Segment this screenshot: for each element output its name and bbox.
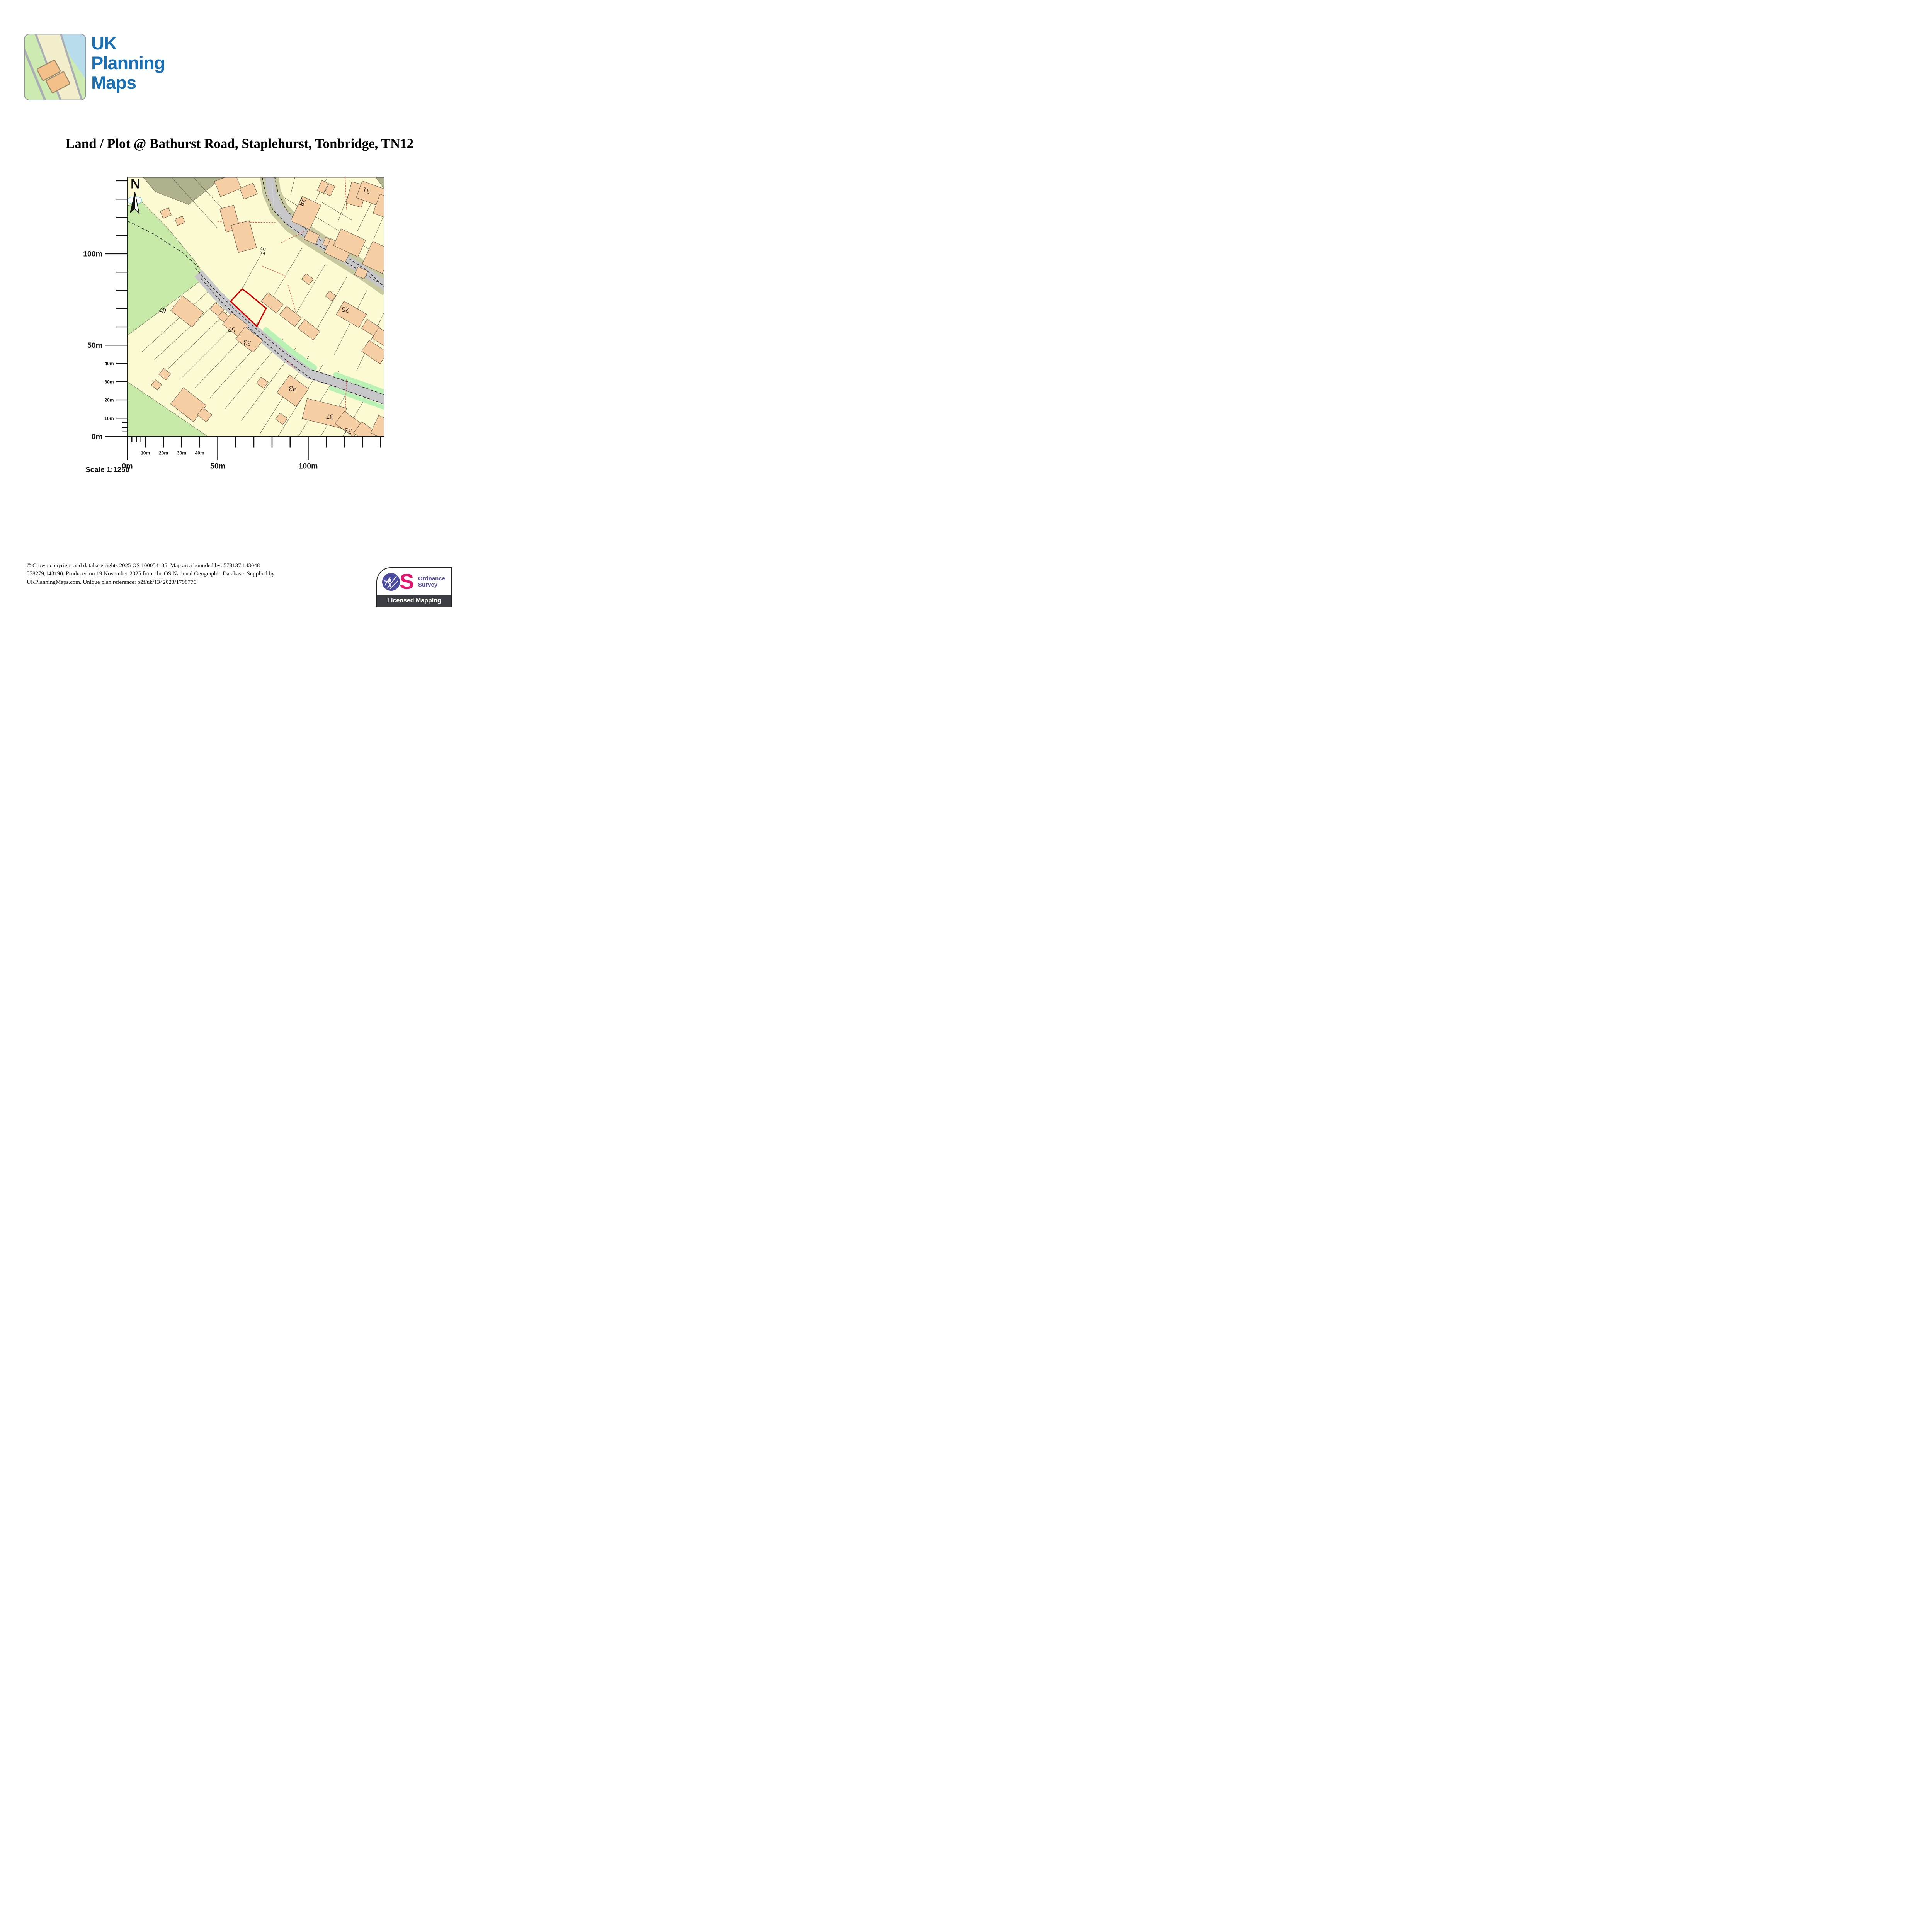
- planning-map-page: { "logo": { "brand": ["UK", "Planning", …: [0, 0, 479, 678]
- uk-planning-maps-logo-icon: [24, 34, 86, 100]
- svg-text:20m: 20m: [104, 398, 114, 403]
- north-label: N: [131, 177, 140, 192]
- svg-text:20m: 20m: [159, 451, 168, 456]
- logo-line-uk: UK: [91, 33, 165, 53]
- svg-text:100m: 100m: [299, 462, 318, 471]
- site-plan-map: 31 28 37 25 67 57 53 43 37 33 N: [82, 176, 385, 472]
- os-s-glyph: S: [400, 570, 414, 594]
- licensed-mapping-bar: Licensed Mapping: [377, 595, 451, 607]
- ordnance-survey-logo: S Ordnance Survey: [377, 568, 451, 595]
- page-title: Land / Plot @ Bathurst Road, Staplehurst…: [0, 136, 479, 151]
- house-number-label: 43: [288, 384, 297, 393]
- copyright-text: © Crown copyright and database rights 20…: [27, 562, 359, 587]
- logo-line-planning: Planning: [91, 53, 165, 73]
- uk-planning-maps-logo-text: UK Planning Maps: [91, 33, 165, 92]
- house-number-label: 37: [258, 247, 267, 255]
- horizontal-scale-labels: 0m 10m 20m 30m 40m 50m 100m: [122, 451, 318, 471]
- svg-text:10m: 10m: [104, 416, 114, 421]
- svg-text:100m: 100m: [83, 250, 102, 259]
- copyright-line: 578279,143190. Produced on 19 November 2…: [27, 570, 359, 578]
- scale-ratio-label: Scale 1:1250: [85, 466, 129, 474]
- svg-text:50m: 50m: [210, 462, 225, 471]
- house-number-label: 33: [344, 426, 352, 435]
- copyright-line: © Crown copyright and database rights 20…: [27, 562, 359, 570]
- svg-text:40m: 40m: [195, 451, 204, 456]
- ordnance-survey-badge: S Ordnance Survey Licensed Mapping: [376, 567, 452, 607]
- house-number-label: 57: [228, 325, 236, 334]
- house-number-label: 53: [243, 338, 252, 347]
- logo-line-maps: Maps: [91, 73, 165, 92]
- svg-text:10m: 10m: [141, 451, 150, 456]
- horizontal-scale-bar: [105, 437, 384, 461]
- copyright-line: UKPlanningMaps.com. Unique plan referenc…: [27, 578, 359, 587]
- house-number-label: 37: [326, 412, 334, 421]
- svg-text:50m: 50m: [87, 341, 102, 350]
- svg-text:40m: 40m: [104, 361, 114, 366]
- house-number-label: 25: [341, 305, 350, 314]
- os-logo-icon: S: [381, 570, 417, 594]
- svg-text:30m: 30m: [177, 451, 186, 456]
- svg-text:0m: 0m: [92, 433, 102, 441]
- svg-text:30m: 30m: [104, 379, 114, 384]
- os-wordmark: Ordnance Survey: [418, 576, 445, 588]
